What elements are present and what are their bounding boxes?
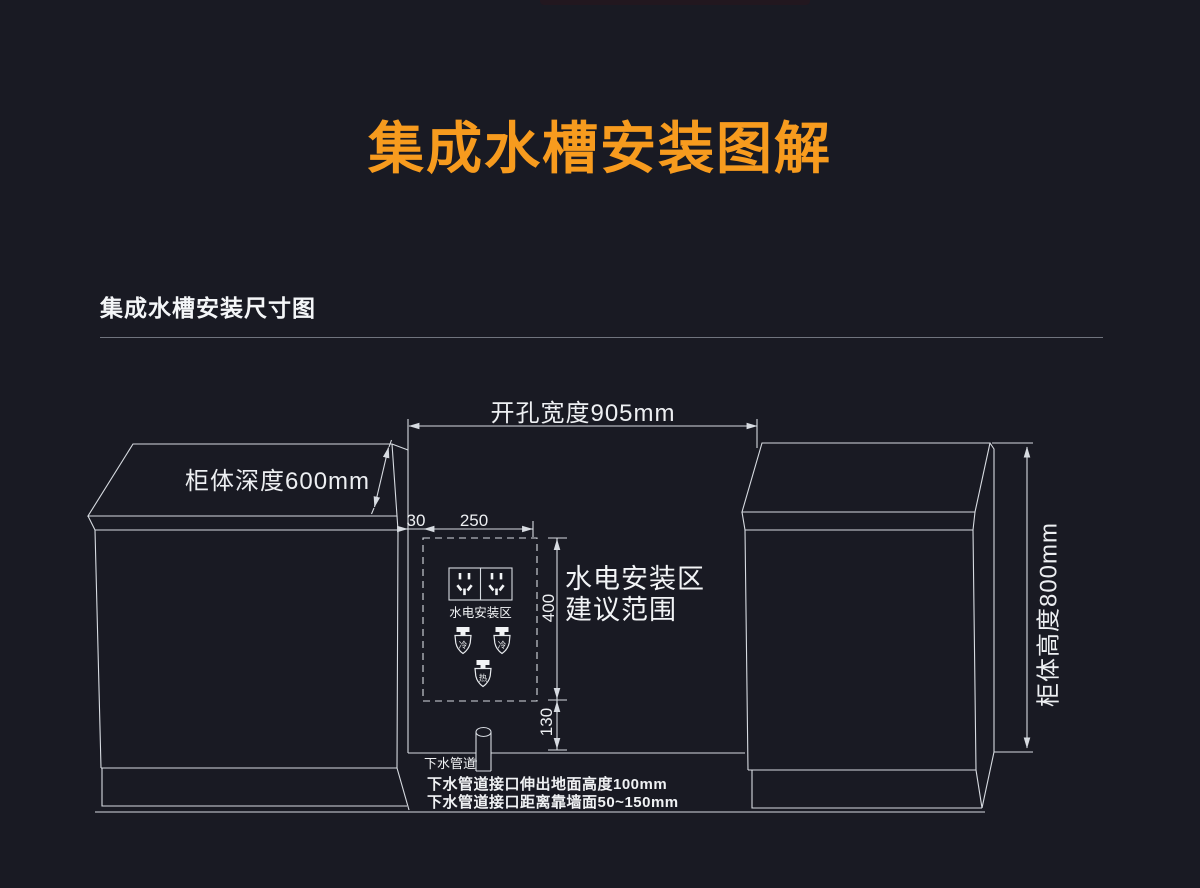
installation-diagram: 冷 冷 热	[0, 0, 1200, 888]
right-cabinet-outline	[742, 443, 994, 808]
page-background: { "page": { "background_color": "#191A23…	[0, 0, 1200, 888]
dim-130-label: 130	[537, 692, 557, 752]
zone-box-label: 水电安装区	[443, 602, 518, 621]
dim-opening-width-label: 开孔宽度905mm	[408, 393, 758, 428]
valve-cold-1-char: 冷	[459, 640, 468, 650]
zone-note: 水电安装区 建议范围	[565, 564, 705, 626]
left-cabinet-outline	[88, 444, 409, 810]
drain-pipe-label: 下水管道	[424, 753, 476, 772]
drain-note-2: 下水管道接口距离靠墙面50~150mm	[427, 791, 679, 812]
dim-30-label: 30	[402, 511, 430, 531]
valve-hot-char: 热	[479, 673, 488, 683]
socket-outlet-icon	[449, 568, 512, 600]
valve-cold-2-char: 冷	[498, 640, 507, 650]
dim-400-label: 400	[539, 578, 559, 638]
drain-pipe-icon	[476, 728, 491, 772]
zone-note-line2: 建议范围	[565, 595, 705, 626]
dim-800-line	[992, 443, 1033, 752]
dim-cabinet-depth-label: 柜体深度600mm	[185, 461, 370, 496]
dim-250-label: 250	[444, 511, 504, 531]
zone-note-line1: 水电安装区	[565, 564, 705, 595]
dim-600-line	[372, 440, 392, 514]
dim-cabinet-height-label: 柜体高度800mm	[1029, 505, 1064, 725]
